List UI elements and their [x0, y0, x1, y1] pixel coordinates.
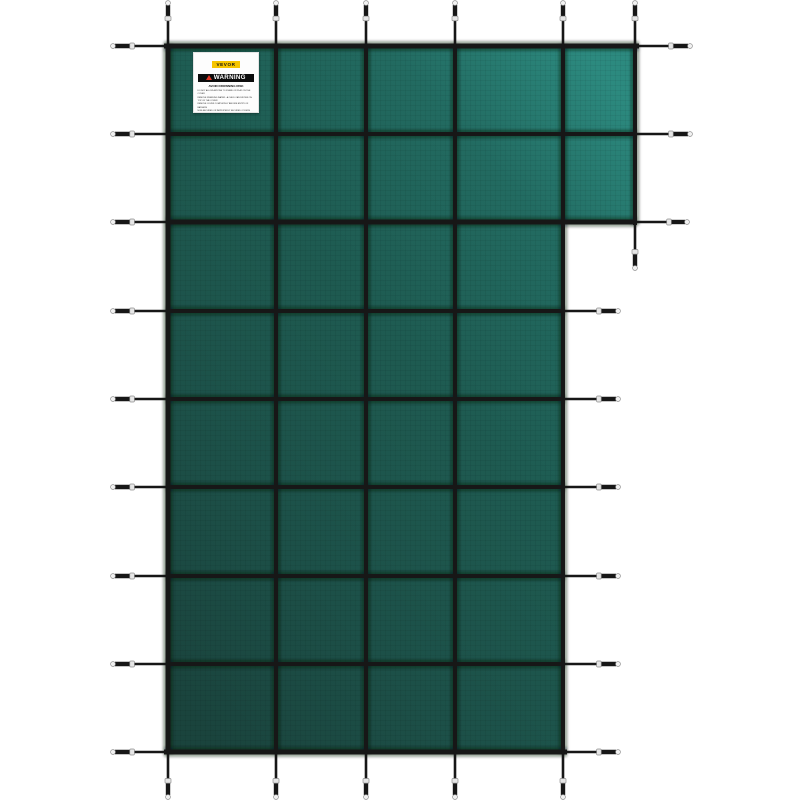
anchor-buckle: [560, 16, 566, 21]
anchor-tip: [111, 220, 116, 225]
anchor-spring: [637, 43, 692, 49]
anchor-tip: [616, 662, 621, 667]
anchor-spring: [632, 1, 638, 46]
anchor-spring: [165, 752, 171, 799]
anchor-tip: [274, 1, 279, 6]
anchor-spring: [273, 1, 279, 46]
anchor-tip: [111, 485, 116, 490]
anchor-spring: [565, 484, 620, 490]
anchor-tip: [166, 795, 171, 800]
anchor-tip: [561, 795, 566, 800]
anchor-tip: [111, 574, 116, 579]
anchor-spring: [111, 573, 166, 579]
anchor-buckle: [597, 396, 602, 402]
anchor-tip: [166, 1, 171, 6]
anchor-buckle: [667, 219, 672, 225]
anchor-buckle: [597, 484, 602, 490]
anchor-spring: [111, 749, 166, 755]
anchor-spring: [273, 752, 279, 799]
anchor-tip: [453, 795, 458, 800]
anchor-buckle: [273, 16, 279, 21]
anchor-tip: [111, 750, 116, 755]
anchor-spring: [565, 573, 620, 579]
anchor-spring: [111, 308, 166, 314]
anchor-tip: [688, 132, 693, 137]
anchor-buckle: [130, 131, 135, 137]
anchor-tip: [364, 795, 369, 800]
anchor-tip: [111, 132, 116, 137]
anchor-buckle: [273, 779, 279, 784]
anchor-buckle: [597, 749, 602, 755]
anchor-spring: [111, 43, 166, 49]
pool-cover-product-photo: VEVOR WARNING AVOID DROWNING RISK DO NOT…: [0, 0, 800, 800]
anchor-buckle: [165, 16, 171, 21]
anchor-tip: [453, 1, 458, 6]
warning-label: VEVOR WARNING AVOID DROWNING RISK DO NOT…: [193, 52, 259, 113]
brand-badge: VEVOR: [212, 61, 239, 68]
warning-line: NON-SECURED OR IMPROPERLY SECURED COVERS…: [198, 110, 255, 113]
warning-line: DO NOT ALLOW ANYONE TO STAND OR PLAY ON …: [198, 90, 255, 96]
anchor-buckle: [130, 43, 135, 49]
warning-line: REMOVE STANDING WATER - A CHILD CAN DROW…: [198, 97, 255, 103]
anchor-buckle: [597, 308, 602, 314]
anchor-spring: [111, 396, 166, 402]
anchor-buckle: [130, 484, 135, 490]
anchor-spring: [363, 752, 369, 799]
anchor-spring: [637, 131, 692, 137]
anchor-tip: [111, 397, 116, 402]
anchor-buckle: [363, 779, 369, 784]
anchor-spring: [565, 396, 620, 402]
anchor-buckle: [130, 573, 135, 579]
anchor-tip: [364, 1, 369, 6]
warning-banner-text: WARNING: [214, 74, 246, 81]
anchor-buckle: [130, 308, 135, 314]
anchor-tip: [633, 266, 638, 271]
anchor-buckle: [130, 396, 135, 402]
anchor-spring: [560, 752, 566, 799]
anchor-tip: [616, 309, 621, 314]
anchor-spring: [565, 661, 620, 667]
anchor-buckle: [452, 779, 458, 784]
anchor-spring: [452, 1, 458, 46]
pool-cover-illustration: [0, 0, 800, 800]
anchor-spring: [363, 1, 369, 46]
anchor-tip: [111, 309, 116, 314]
anchor-buckle: [130, 219, 135, 225]
anchor-spring: [111, 131, 166, 137]
anchor-buckle: [669, 131, 674, 137]
anchor-tip: [616, 750, 621, 755]
anchor-buckle: [632, 16, 638, 21]
anchor-buckle: [165, 779, 171, 784]
anchor-tip: [111, 44, 116, 49]
anchor-tip: [633, 1, 638, 6]
anchor-buckle: [560, 779, 566, 784]
anchor-spring: [632, 223, 638, 270]
anchor-spring: [111, 484, 166, 490]
anchor-tip: [688, 44, 693, 49]
anchor-tip: [616, 485, 621, 490]
anchor-tip: [616, 397, 621, 402]
anchor-buckle: [632, 250, 638, 255]
warning-text-block: DO NOT ALLOW ANYONE TO STAND OR PLAY ON …: [194, 90, 258, 113]
anchor-buckle: [452, 16, 458, 21]
anchor-spring: [637, 219, 689, 225]
anchor-spring: [565, 749, 620, 755]
anchor-tip: [561, 1, 566, 6]
anchor-buckle: [669, 43, 674, 49]
anchor-buckle: [597, 661, 602, 667]
warning-banner: WARNING: [198, 74, 254, 83]
anchor-spring: [452, 752, 458, 799]
warning-line: REMOVE COVER COMPLETELY BEFORE ENTRY OF …: [198, 103, 255, 109]
anchor-spring: [111, 661, 166, 667]
anchor-tip: [274, 795, 279, 800]
anchor-buckle: [363, 16, 369, 21]
warning-heading: AVOID DROWNING RISK: [194, 85, 258, 89]
warning-triangle-icon: [206, 75, 212, 80]
anchor-tip: [111, 662, 116, 667]
anchor-spring: [111, 219, 166, 225]
anchor-buckle: [130, 661, 135, 667]
anchor-tip: [685, 220, 690, 225]
anchor-spring: [565, 308, 620, 314]
anchor-spring: [560, 1, 566, 46]
anchor-spring: [165, 1, 171, 46]
anchor-buckle: [130, 749, 135, 755]
anchor-tip: [616, 574, 621, 579]
anchor-buckle: [597, 573, 602, 579]
